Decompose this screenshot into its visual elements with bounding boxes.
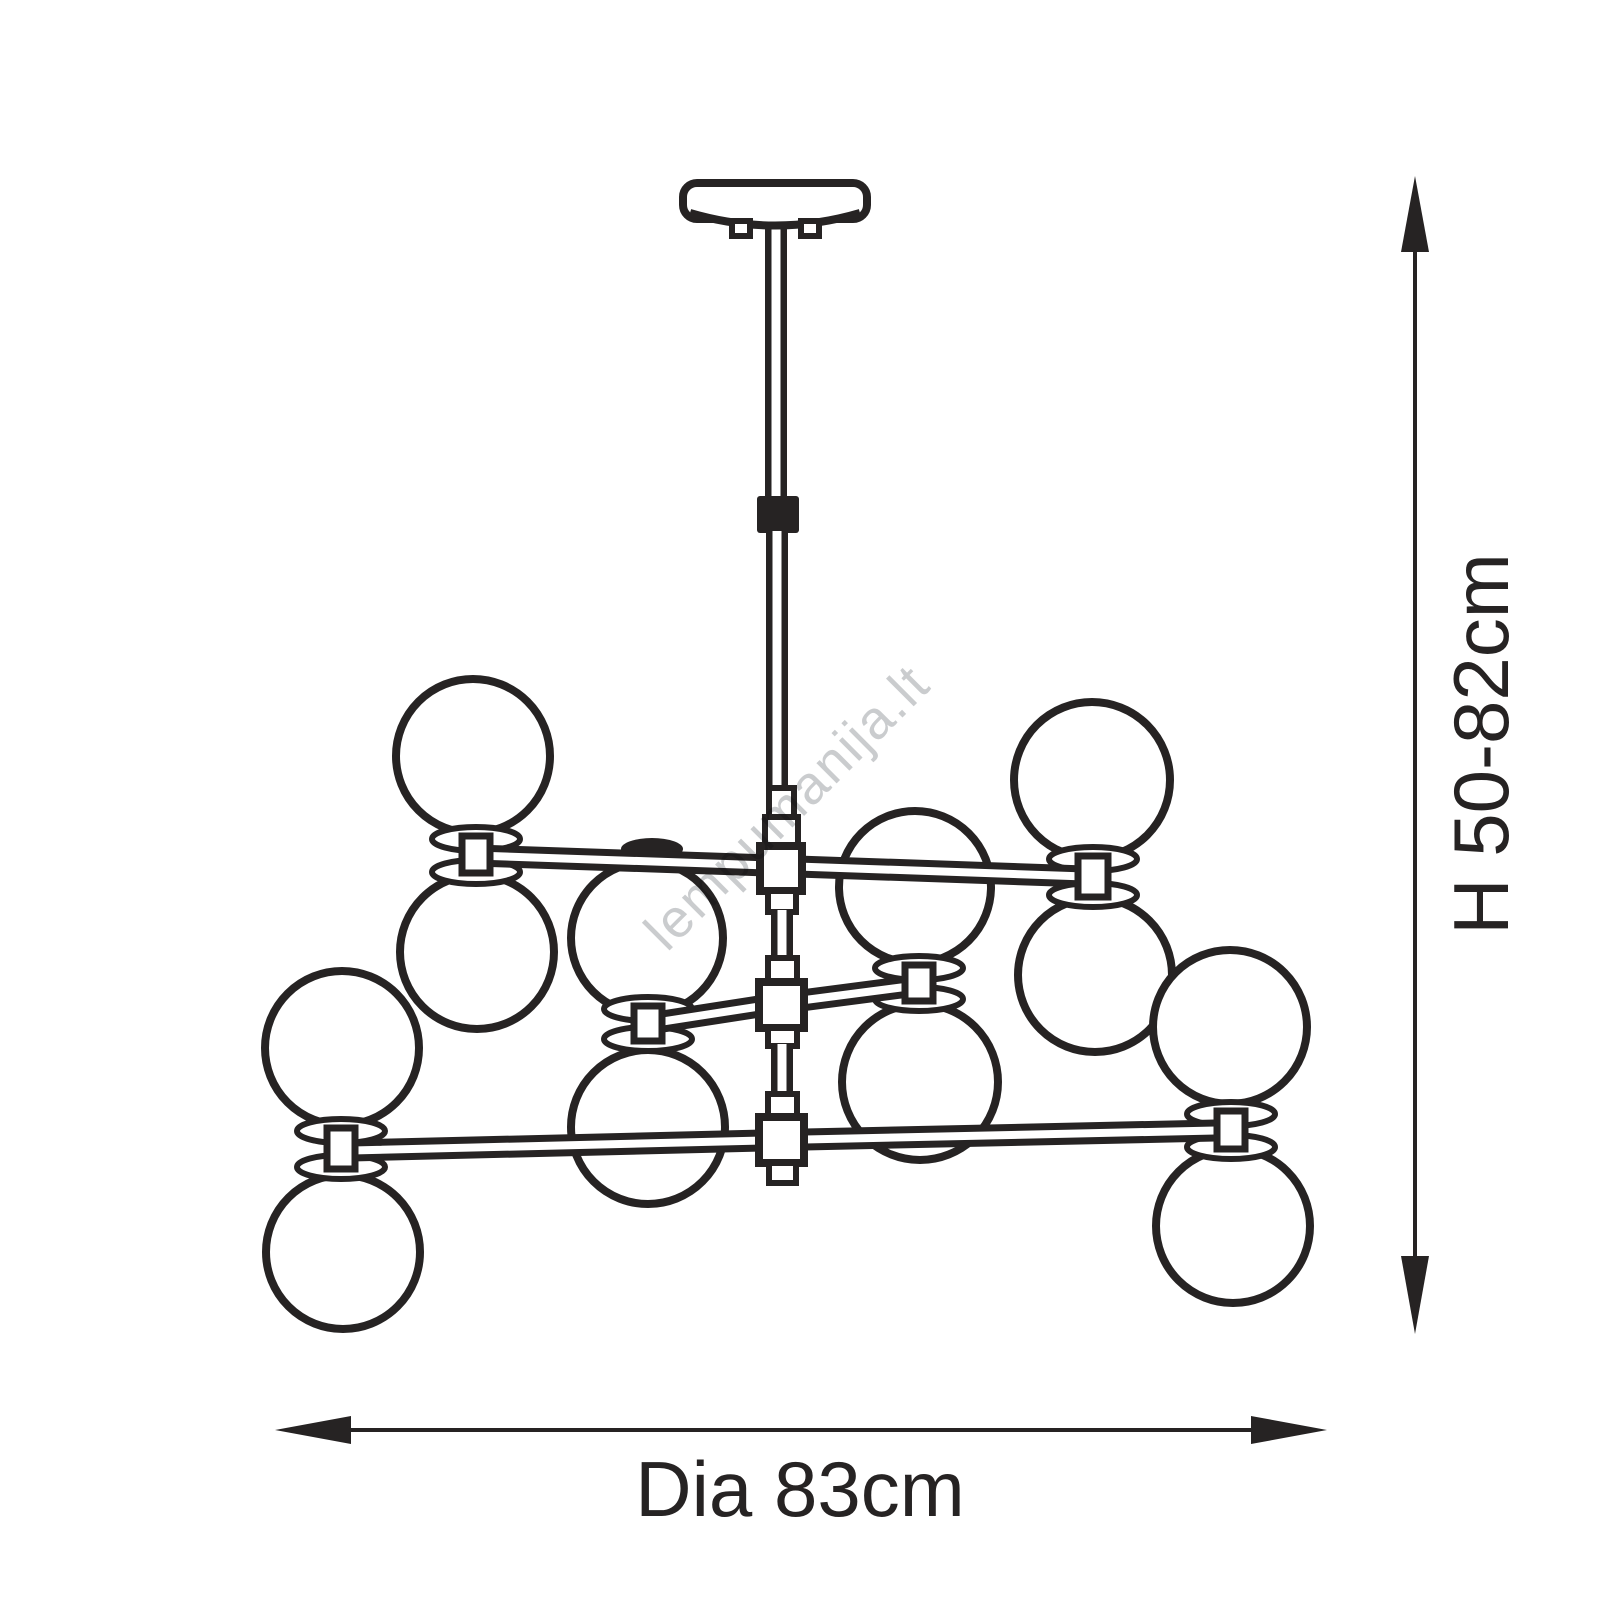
globe (839, 811, 991, 963)
column-end-cap (769, 1163, 796, 1183)
globe (571, 1050, 725, 1204)
cord-connector (757, 496, 799, 533)
product-dimension-drawing: H 50-82cm Dia 83cm lempumanija.lt (0, 0, 1600, 1600)
canopy-screw (801, 221, 819, 236)
chandelier-diagram: H 50-82cm Dia 83cm lempumanija.lt (0, 0, 1600, 1600)
globe (1014, 702, 1170, 858)
globe (265, 971, 419, 1125)
globe (266, 1175, 420, 1329)
junction-box-bottom (759, 1117, 804, 1163)
globe (400, 875, 554, 1029)
junction-box-middle (759, 982, 804, 1028)
hub (1078, 856, 1108, 897)
hub (327, 1128, 355, 1169)
canopy-screw (732, 221, 750, 236)
globe (1018, 898, 1172, 1052)
hub (634, 1006, 662, 1041)
hub (905, 965, 933, 1001)
hub (462, 836, 490, 873)
height-dimension-label: H 50-82cm (1437, 553, 1525, 934)
globe (1153, 950, 1307, 1104)
hub (1217, 1111, 1245, 1149)
diameter-dimension-label: Dia 83cm (635, 1445, 964, 1533)
globe (1156, 1149, 1310, 1303)
globe (396, 679, 550, 833)
